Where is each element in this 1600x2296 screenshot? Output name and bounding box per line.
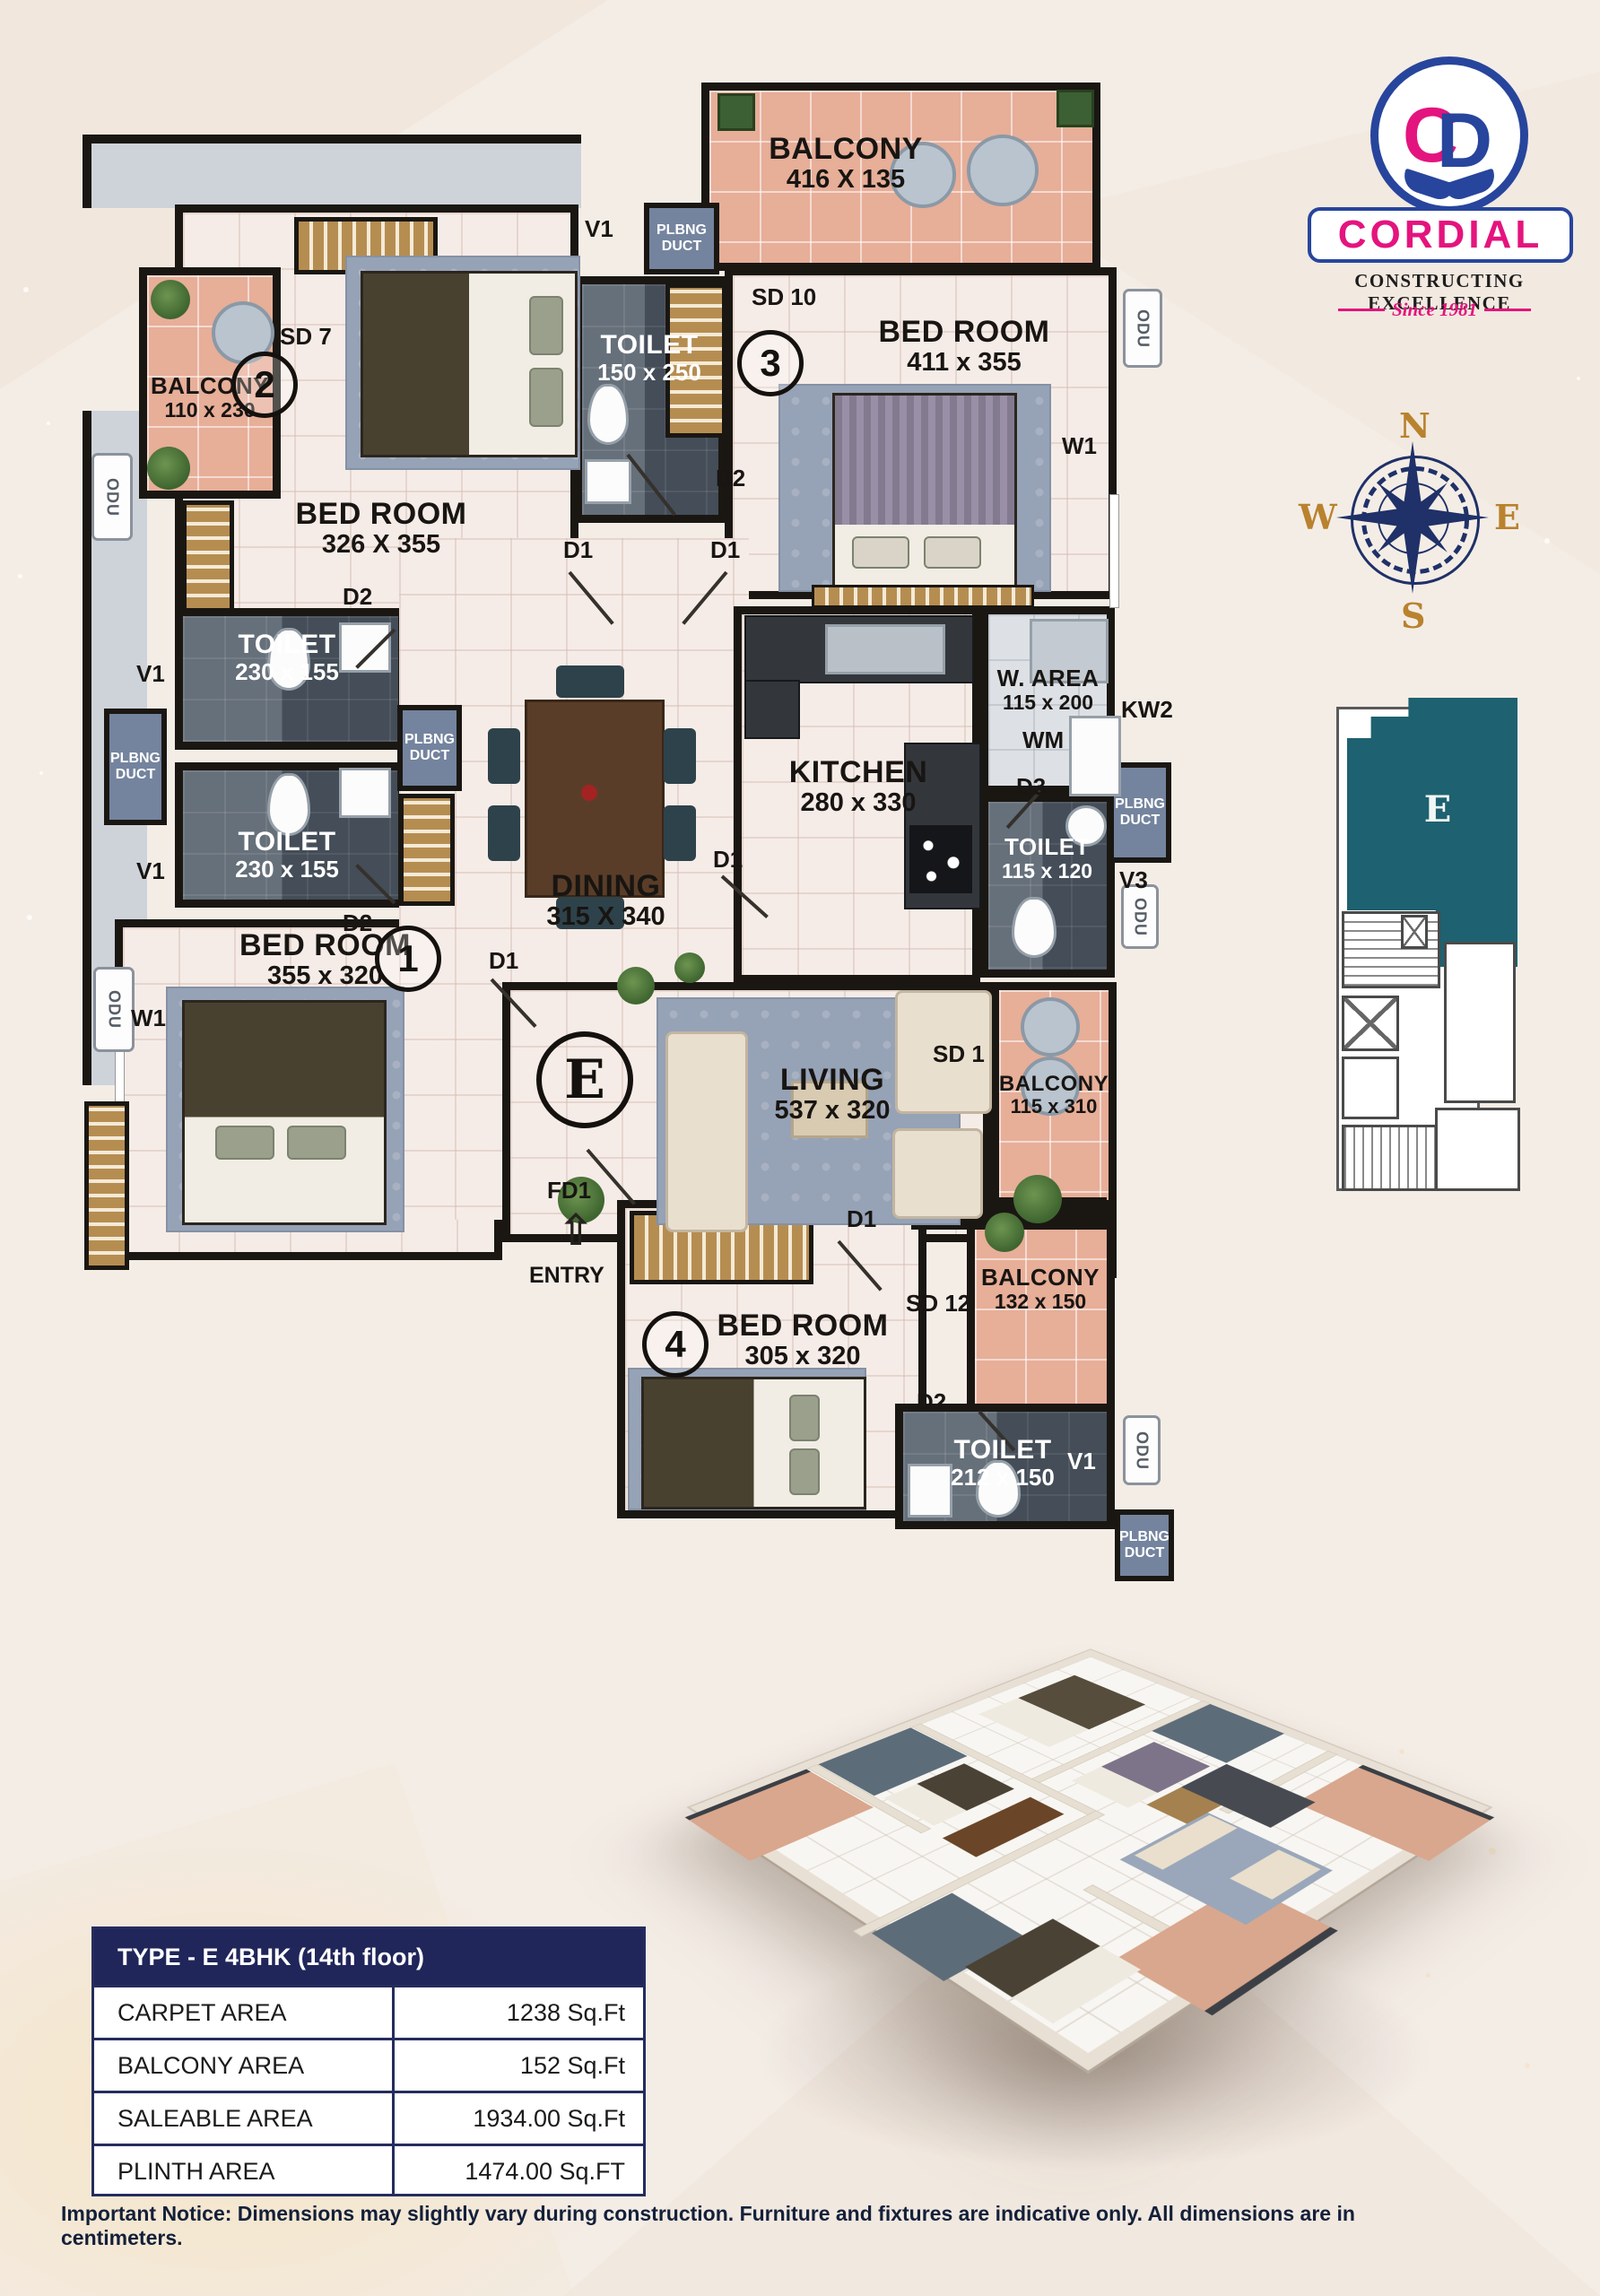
mark-sd1: SD 1 [933, 1040, 985, 1068]
keyplan-stairs [1342, 1125, 1440, 1191]
bedroom-3-number: 3 [737, 330, 804, 396]
mark-sd12: SD 12 [906, 1290, 970, 1318]
compass-e: E [1494, 497, 1520, 537]
pillow [852, 536, 909, 569]
keyplan-room [1435, 1108, 1520, 1191]
area-table-title: TYPE - E 4BHK (14th floor) [94, 1929, 643, 1985]
mark-d2: D2 [716, 465, 745, 492]
sofa [665, 1031, 748, 1232]
bed-base [812, 585, 1034, 608]
unit-3d-render [628, 1471, 1561, 2260]
pillow [287, 1126, 346, 1160]
plant [985, 1213, 1024, 1252]
cordial-logo: C D CORDIAL CONSTRUCTING EXCELLENCE Sinc… [1291, 49, 1587, 336]
keyplan-lift [1401, 915, 1428, 949]
mark-d3: D3 [1016, 773, 1046, 801]
brand-name: CORDIAL [1338, 213, 1543, 257]
plumbing-duct: PLBNGDUCT [644, 203, 719, 274]
mark-kw2: KW2 [1121, 696, 1173, 724]
odu-unit: ODU [91, 453, 133, 541]
plant [1013, 1175, 1062, 1223]
render-balcony [1295, 1765, 1494, 1861]
wardrobe [84, 1101, 129, 1270]
logo-mark-icon: C D [1370, 57, 1528, 214]
row-value: 1474.00 Sq.FT [395, 2146, 643, 2196]
brand-since: Since 1981 [1338, 299, 1531, 321]
kitchen-counter [744, 680, 800, 739]
label-living: LIVING 537 x 320 [752, 1064, 913, 1126]
mark-fd1: FD1 [547, 1177, 591, 1205]
label-toilet-mid: TOILET 115 x 120 [987, 834, 1108, 883]
pillow [789, 1395, 820, 1441]
wardrobe [399, 794, 455, 906]
row-value: 1934.00 Sq.Ft [395, 2093, 643, 2144]
important-notice: Important Notice: Dimensions may slightl… [61, 2202, 1406, 2250]
unit-e-circle: E [536, 1031, 633, 1128]
keyplan-room [1444, 942, 1516, 1103]
label-balcony-top: BALCONY 416 X 135 [743, 133, 949, 195]
compass-w: W [1299, 497, 1337, 537]
label-toilet-top: TOILET 150 x 250 [581, 330, 717, 386]
render-bed [978, 1675, 1145, 1747]
toilet-icon [587, 384, 629, 445]
planter [717, 93, 755, 131]
plumbing-duct: PLBNGDUCT [397, 705, 462, 791]
plant [674, 952, 705, 983]
key-plan: E [1291, 691, 1543, 1211]
planter [1057, 90, 1094, 127]
hob-icon [909, 825, 972, 893]
row-label: SALEABLE AREA [94, 2093, 395, 2144]
label-toilet-lower: TOILET 230 x 155 [202, 827, 372, 883]
mark-d1: D1 [563, 536, 593, 564]
window-w1-bedroom3 [1110, 495, 1118, 607]
washing-machine [1069, 716, 1121, 796]
odu-unit: ODU [1123, 289, 1162, 368]
since-rule [1338, 309, 1385, 311]
bedroom-4-number: 4 [642, 1311, 709, 1378]
since-rule [1484, 309, 1531, 311]
label-balcony-bottom-right: BALCONY 132 x 150 [973, 1265, 1108, 1313]
chair [488, 728, 520, 784]
bedroom-2-number: 2 [231, 352, 298, 418]
mark-d1: D1 [489, 947, 518, 975]
pillow [924, 536, 981, 569]
label-kitchen: KITCHEN 280 x 330 [773, 756, 943, 818]
mark-sd7: SD 7 [280, 323, 332, 351]
row-label: BALCONY AREA [94, 2040, 395, 2091]
odu-unit: ODU [93, 967, 135, 1052]
compass-rose: N W E S [1299, 405, 1523, 639]
balcony-chair [1021, 997, 1080, 1057]
keyplan-unit-label: E [1424, 788, 1452, 831]
table-row: PLINTH AREA 1474.00 Sq.FT [94, 2144, 643, 2196]
sofa [892, 1128, 983, 1219]
chair [556, 665, 624, 698]
render-floorplate [691, 1650, 1490, 2071]
row-label: PLINTH AREA [94, 2146, 395, 2196]
label-dining: DINING 315 X 340 [518, 870, 693, 932]
row-value: 1238 Sq.Ft [395, 1987, 643, 2038]
corridor-band [83, 135, 581, 208]
bed-icon [182, 1000, 387, 1225]
sink-icon [585, 459, 631, 504]
plant [147, 447, 190, 490]
entry-arrow-icon: ⇧ [558, 1209, 594, 1252]
table-row: CARPET AREA 1238 Sq.Ft [94, 1985, 643, 2038]
label-bedroom-3: BED ROOM 411 x 355 [852, 316, 1076, 378]
mark-d2: D2 [343, 583, 372, 611]
chair [664, 805, 696, 861]
mark-d1: D1 [847, 1205, 876, 1233]
bedroom-1-number: 1 [375, 926, 441, 992]
entry-label: ENTRY [529, 1263, 604, 1289]
area-table: TYPE - E 4BHK (14th floor) CARPET AREA 1… [91, 1926, 646, 2196]
row-label: CARPET AREA [94, 1987, 395, 2038]
kitchen-sink [825, 624, 945, 674]
chair [664, 728, 696, 784]
mark-w1: W1 [1062, 432, 1097, 460]
mark-d2: D2 [917, 1388, 946, 1416]
compass-s: S [1401, 596, 1425, 636]
pillow [529, 296, 563, 355]
table-decor [581, 785, 597, 801]
label-toilet-upper: TOILET 230 x 155 [202, 630, 372, 685]
toilet-icon [1012, 897, 1057, 958]
balcony-chair [967, 135, 1039, 206]
mark-w1: W1 [131, 1004, 166, 1032]
table-row: SALEABLE AREA 1934.00 Sq.Ft [94, 2091, 643, 2144]
plant [617, 967, 655, 1004]
mark-sd10: SD 10 [752, 283, 816, 311]
table-row: BALCONY AREA 152 Sq.Ft [94, 2038, 643, 2091]
row-value: 152 Sq.Ft [395, 2040, 643, 2091]
sink-icon [339, 768, 391, 818]
keyplan-lift [1342, 996, 1399, 1051]
mark-v3: V3 [1119, 866, 1148, 894]
compass-n: N [1399, 405, 1430, 446]
mark-wm: WM [1022, 726, 1064, 754]
keyplan-room [1342, 1057, 1399, 1119]
mark-v1: V1 [136, 660, 165, 688]
brand-name-box: CORDIAL [1308, 207, 1573, 263]
wardrobe [182, 500, 234, 613]
label-bedroom-2: BED ROOM 326 X 355 [269, 498, 493, 560]
mark-d2: D2 [343, 909, 372, 937]
mark-d1: D1 [713, 846, 743, 874]
mark-v1: V1 [136, 857, 165, 885]
monogram-d: D [1437, 102, 1492, 179]
chair [488, 805, 520, 861]
label-bedroom-4: BED ROOM 305 x 320 [713, 1309, 892, 1371]
label-balcony-right: BALCONY 115 x 310 [996, 1073, 1112, 1118]
plant [151, 280, 190, 319]
pillow [529, 368, 563, 427]
label-work-area: W. AREA 115 x 200 [983, 665, 1113, 714]
plumbing-duct: PLBNGDUCT [104, 709, 167, 825]
mark-d1: D1 [710, 536, 740, 564]
mark-v1: V1 [585, 215, 613, 243]
pillow [215, 1126, 274, 1160]
